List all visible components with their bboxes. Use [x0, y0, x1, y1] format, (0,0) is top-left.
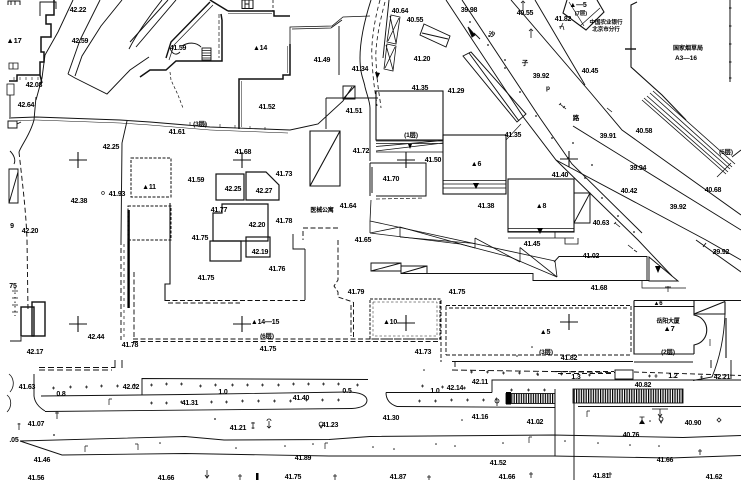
- svg-text:41.65: 41.65: [355, 237, 372, 244]
- svg-text:41.66: 41.66: [657, 457, 674, 464]
- svg-text:41.52: 41.52: [490, 460, 507, 467]
- svg-text:(1层): (1层): [404, 130, 418, 139]
- svg-text:39.92: 39.92: [670, 204, 687, 211]
- svg-text:41.56: 41.56: [28, 475, 45, 480]
- svg-text:41.70: 41.70: [383, 176, 400, 183]
- svg-text:41.38: 41.38: [478, 203, 495, 210]
- svg-text:0.8: 0.8: [56, 391, 65, 398]
- svg-text:41.02: 41.02: [583, 253, 600, 260]
- svg-text:41.82: 41.82: [555, 16, 572, 23]
- svg-text:p: p: [546, 85, 550, 92]
- svg-text:40.64: 40.64: [392, 8, 409, 15]
- svg-text:0.5: 0.5: [342, 388, 351, 395]
- svg-text:41.78: 41.78: [276, 218, 293, 225]
- svg-text:国家烟草局: 国家烟草局: [673, 44, 703, 52]
- svg-text:▲14: ▲14: [253, 45, 267, 52]
- svg-text:▲17: ▲17: [6, 36, 21, 45]
- svg-text:医械公寓: 医械公寓: [310, 206, 333, 214]
- svg-text:42.27: 42.27: [256, 188, 273, 195]
- svg-text:42.38: 42.38: [71, 198, 88, 205]
- svg-text:41.62: 41.62: [706, 474, 723, 480]
- svg-text:39.92: 39.92: [533, 73, 550, 80]
- svg-text:▲5: ▲5: [540, 329, 551, 336]
- svg-text:40.68: 40.68: [705, 187, 722, 194]
- svg-text:41.78: 41.78: [122, 342, 139, 349]
- svg-text:41.77: 41.77: [211, 207, 228, 214]
- svg-text:41.68: 41.68: [591, 285, 608, 292]
- svg-text:.05: .05: [9, 437, 18, 444]
- svg-text:41.49: 41.49: [314, 57, 331, 64]
- svg-text:▲8: ▲8: [536, 203, 547, 210]
- svg-text:42.11: 42.11: [472, 379, 488, 386]
- svg-text:41.75: 41.75: [260, 346, 277, 353]
- svg-text:41.73: 41.73: [276, 171, 293, 178]
- svg-text:41.40: 41.40: [552, 172, 569, 179]
- svg-text:(7层): (7层): [575, 9, 587, 17]
- svg-text:42.08: 42.08: [26, 82, 43, 89]
- svg-text:北京市分行: 北京市分行: [592, 25, 620, 33]
- svg-text:42.02: 42.02: [123, 384, 140, 391]
- svg-text:41.40: 41.40: [293, 395, 310, 402]
- svg-text:41.82: 41.82: [561, 355, 578, 362]
- svg-text:41.52: 41.52: [259, 104, 276, 111]
- svg-text:42.21: 42.21: [714, 374, 731, 381]
- svg-text:41.21: 41.21: [230, 425, 247, 432]
- svg-text:41.35: 41.35: [505, 132, 522, 139]
- svg-text:41.23: 41.23: [322, 422, 339, 429]
- svg-text:41.20: 41.20: [414, 56, 431, 63]
- svg-text:1.0: 1.0: [430, 388, 439, 395]
- svg-text:40.63: 40.63: [593, 220, 610, 227]
- svg-text:41.87: 41.87: [390, 474, 407, 480]
- svg-text:▲7: ▲7: [663, 324, 674, 333]
- svg-text:▲11: ▲11: [142, 184, 156, 191]
- svg-text:40.42: 40.42: [621, 188, 638, 195]
- svg-text:1.0: 1.0: [218, 389, 227, 396]
- svg-text:42.19: 42.19: [252, 249, 269, 256]
- svg-text:41.64: 41.64: [340, 203, 357, 210]
- svg-text:(3层): (3层): [193, 119, 207, 128]
- svg-text:41.75: 41.75: [285, 474, 302, 480]
- svg-text:▲14—15: ▲14—15: [251, 319, 280, 326]
- svg-text:39.94: 39.94: [630, 165, 647, 172]
- svg-text:41.51: 41.51: [346, 108, 363, 115]
- svg-text:1.3: 1.3: [571, 374, 580, 381]
- svg-text:41.75: 41.75: [449, 289, 466, 296]
- svg-text:39.91: 39.91: [600, 133, 617, 140]
- svg-text:(5层): (5层): [719, 147, 733, 156]
- svg-text:41.16: 41.16: [472, 414, 489, 421]
- svg-text:42.44: 42.44: [88, 334, 105, 341]
- svg-text:(3层): (3层): [539, 347, 553, 356]
- svg-text:(6层): (6层): [260, 331, 274, 340]
- svg-text:41.89: 41.89: [295, 455, 312, 462]
- svg-text:路: 路: [573, 113, 580, 122]
- svg-text:41.34: 41.34: [352, 66, 369, 73]
- svg-text:40.90: 40.90: [685, 420, 702, 427]
- svg-text:40.82: 40.82: [635, 382, 652, 389]
- svg-text:42.17: 42.17: [27, 349, 44, 356]
- svg-text:41.29: 41.29: [448, 88, 465, 95]
- svg-text:40.45: 40.45: [582, 68, 599, 75]
- svg-text:42.59: 42.59: [72, 38, 89, 45]
- svg-text:41.02: 41.02: [527, 419, 544, 426]
- svg-text:▲6: ▲6: [471, 161, 482, 168]
- svg-text:41.59: 41.59: [170, 45, 187, 52]
- svg-text:41.93: 41.93: [109, 191, 126, 198]
- svg-text:41.07: 41.07: [28, 421, 45, 428]
- svg-text:40.55: 40.55: [407, 17, 424, 24]
- svg-text:41.79: 41.79: [348, 289, 365, 296]
- svg-text:中国农业银行: 中国农业银行: [589, 18, 623, 26]
- svg-text:41.45: 41.45: [524, 241, 541, 248]
- svg-text:41.61: 41.61: [169, 129, 186, 136]
- svg-text:41.50: 41.50: [425, 157, 442, 164]
- svg-text:41.31: 41.31: [182, 400, 199, 407]
- svg-text:42.20: 42.20: [249, 222, 266, 229]
- svg-text:沙: 沙: [489, 30, 496, 38]
- svg-text:41.68: 41.68: [235, 149, 252, 156]
- svg-text:40.76: 40.76: [623, 432, 640, 439]
- svg-text:41.75: 41.75: [198, 275, 215, 282]
- svg-text:41.46: 41.46: [34, 457, 51, 464]
- svg-text:▲10: ▲10: [383, 319, 397, 326]
- svg-text:41.76: 41.76: [269, 266, 286, 273]
- svg-text:42.20: 42.20: [22, 228, 39, 235]
- svg-text:1.2: 1.2: [668, 373, 677, 380]
- svg-text:40.55: 40.55: [517, 10, 534, 17]
- svg-text:41.73: 41.73: [415, 349, 432, 356]
- svg-text:42.25: 42.25: [103, 144, 120, 151]
- svg-text:41.30: 41.30: [383, 415, 400, 422]
- svg-text:41.35: 41.35: [412, 85, 429, 92]
- svg-text:39.98: 39.98: [461, 7, 478, 14]
- svg-text:岳阳大厦: 岳阳大厦: [656, 317, 680, 325]
- svg-text:42.14: 42.14: [447, 385, 464, 392]
- svg-text:41.72: 41.72: [353, 148, 370, 155]
- svg-text:A3—16: A3—16: [675, 55, 697, 62]
- svg-text:41.59: 41.59: [188, 177, 205, 184]
- svg-text:75: 75: [9, 283, 17, 290]
- svg-text:39.92: 39.92: [713, 249, 730, 256]
- svg-text:▲6: ▲6: [654, 301, 664, 307]
- svg-text:40.58: 40.58: [636, 128, 653, 135]
- svg-text:41.63: 41.63: [19, 384, 36, 391]
- svg-text:42.22: 42.22: [70, 7, 87, 14]
- svg-text:41.75: 41.75: [192, 235, 209, 242]
- svg-text:42.25: 42.25: [225, 186, 242, 193]
- svg-text:▲—5: ▲—5: [569, 2, 587, 9]
- svg-text:子: 子: [522, 59, 529, 67]
- svg-text:41.66: 41.66: [499, 474, 516, 480]
- svg-text:(2层): (2层): [661, 347, 675, 356]
- svg-text:41.66: 41.66: [158, 475, 175, 480]
- svg-text:41.81: 41.81: [593, 473, 610, 480]
- svg-text:9: 9: [10, 223, 14, 230]
- svg-text:42.64: 42.64: [18, 102, 35, 109]
